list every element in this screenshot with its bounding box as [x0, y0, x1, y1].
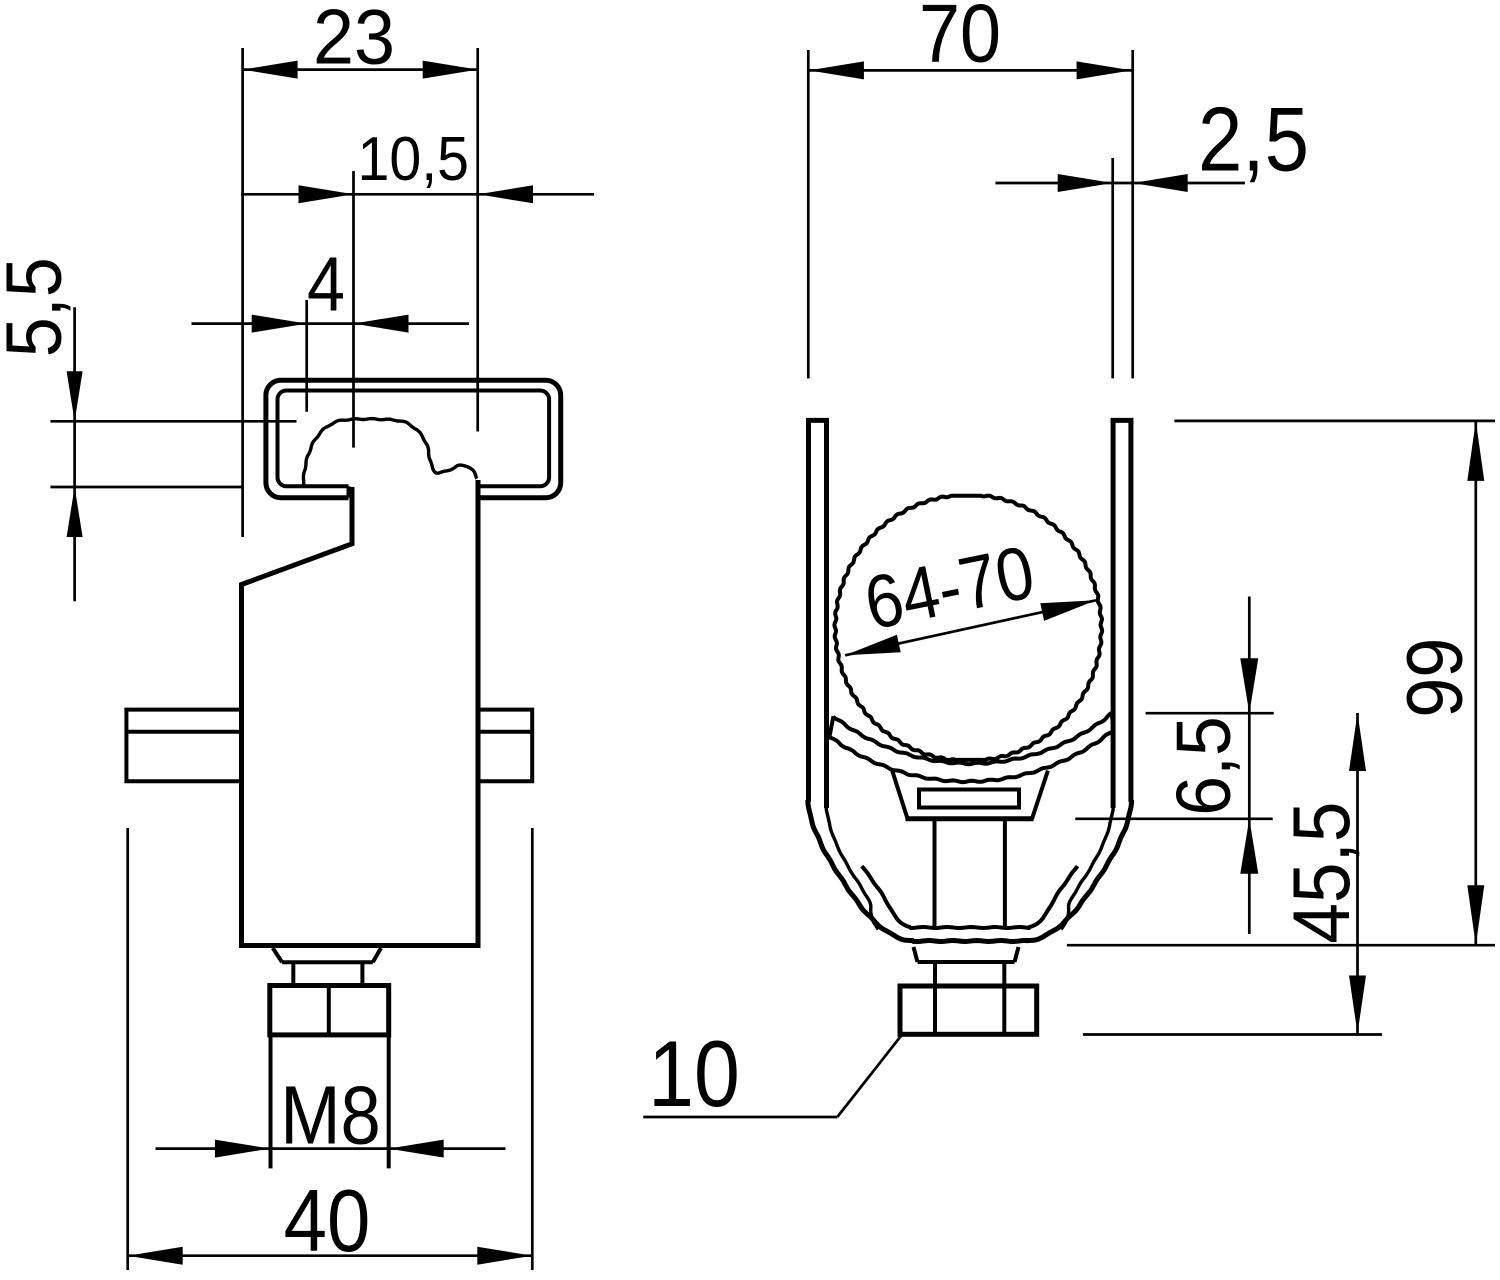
svg-text:2,5: 2,5 [1198, 89, 1309, 190]
svg-text:4: 4 [307, 242, 345, 328]
svg-text:5,5: 5,5 [0, 257, 78, 357]
svg-text:99: 99 [1390, 638, 1479, 718]
svg-text:M8: M8 [280, 1068, 381, 1161]
svg-text:23: 23 [313, 0, 395, 81]
svg-text:10,5: 10,5 [358, 124, 470, 194]
svg-text:6,5: 6,5 [1161, 716, 1247, 816]
svg-text:45,5: 45,5 [1277, 802, 1367, 944]
svg-text:10: 10 [648, 1021, 740, 1126]
svg-text:70: 70 [919, 0, 1001, 80]
svg-text:40: 40 [284, 1171, 371, 1270]
